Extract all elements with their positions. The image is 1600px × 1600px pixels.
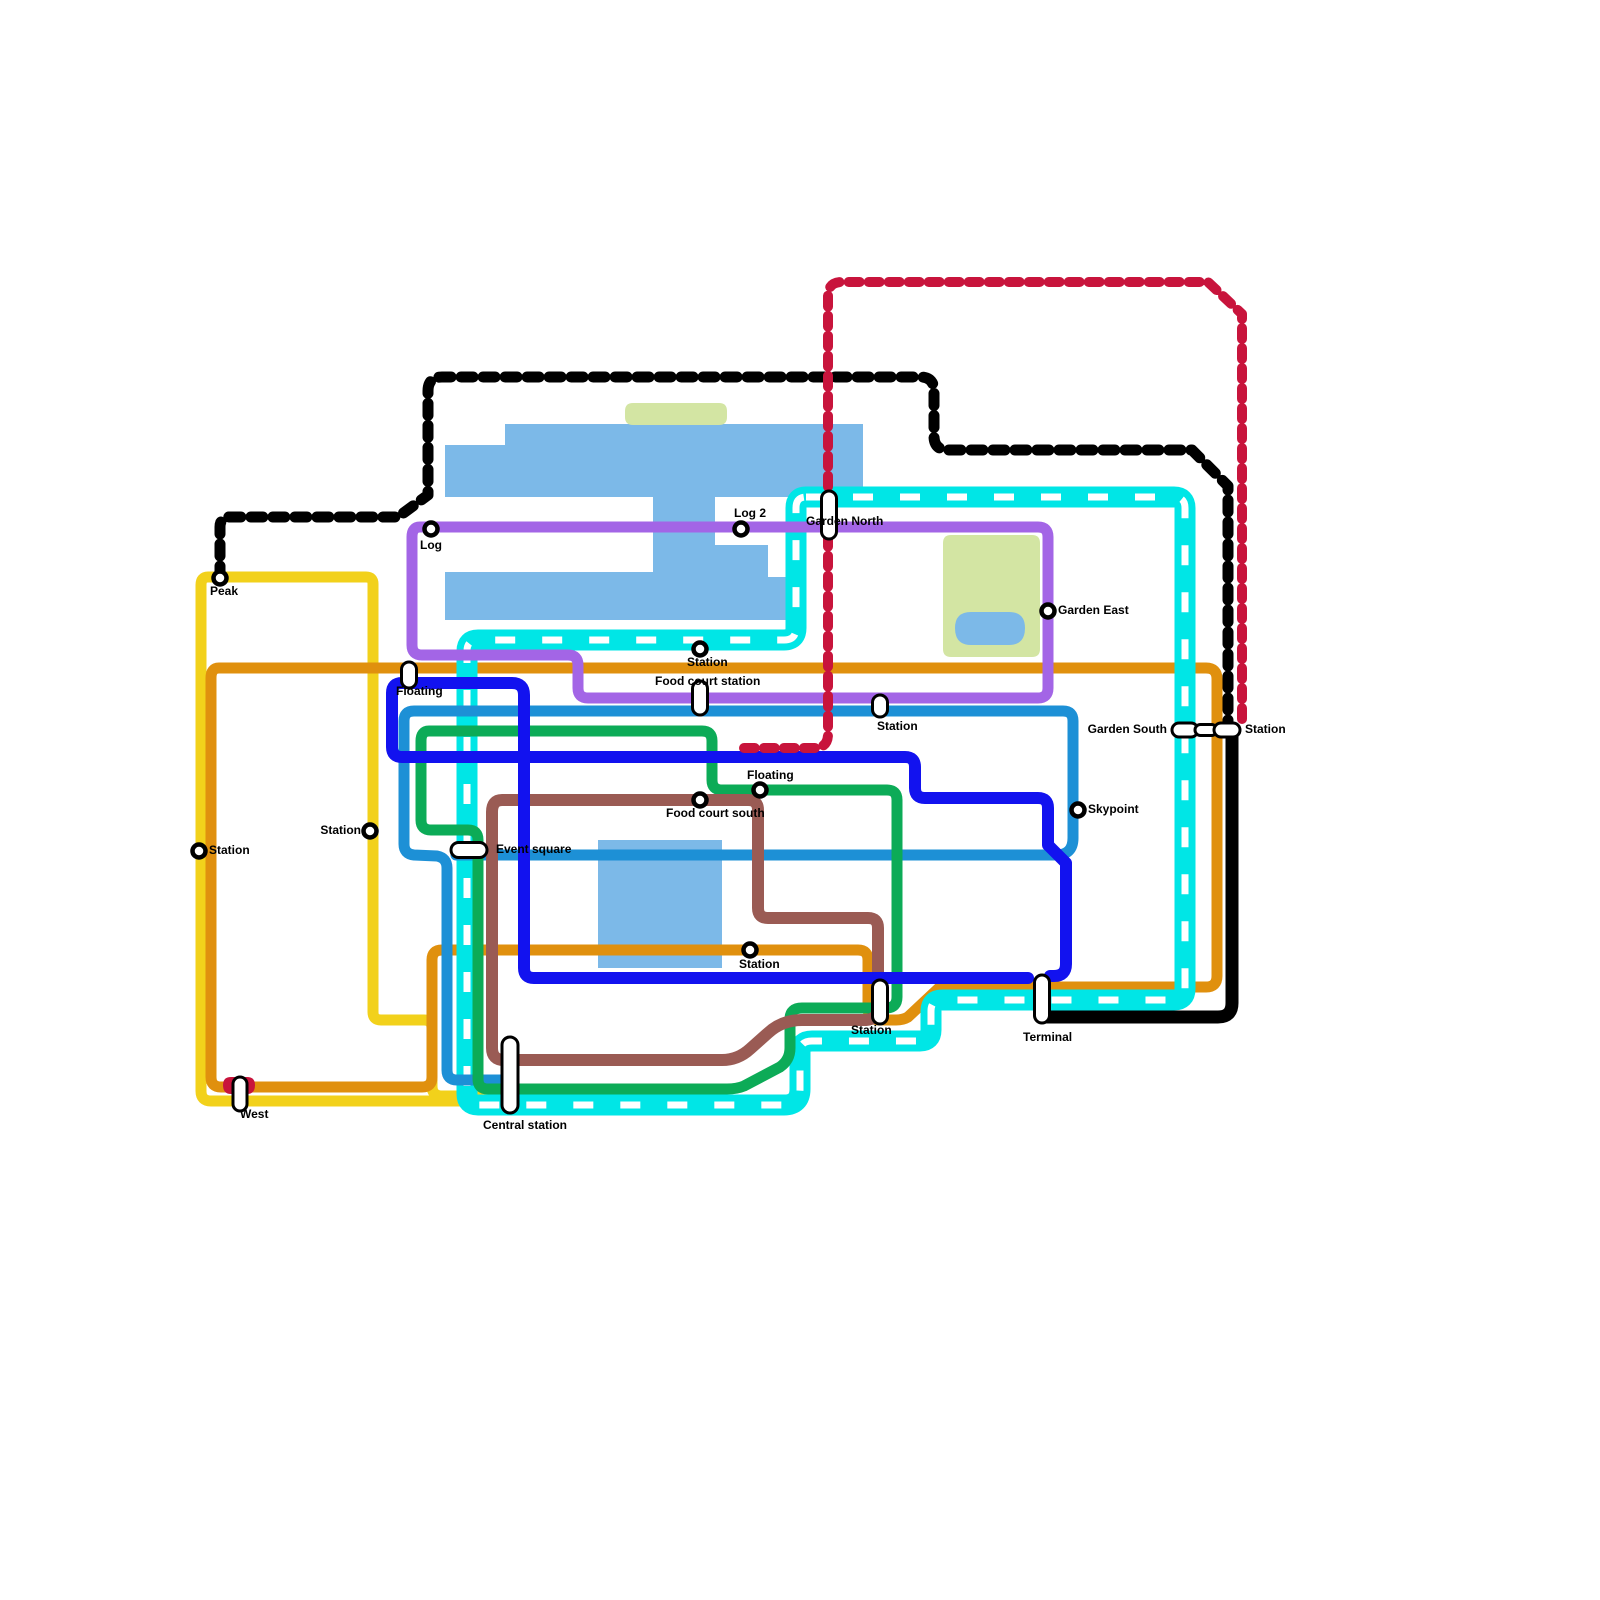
station-marker-station-purple-azure[interactable] (873, 695, 888, 717)
station-marker-event-square[interactable] (451, 843, 487, 858)
station-marker-station-orange-mid[interactable] (744, 944, 757, 957)
map-background (0, 0, 1600, 1600)
station-marker-floating-green[interactable] (754, 784, 767, 797)
station-label-floating-green: Floating (747, 768, 794, 782)
station-marker-station-cyan-north[interactable] (694, 643, 707, 656)
station-marker-food-court-south[interactable] (694, 794, 707, 807)
station-marker-log[interactable] (425, 523, 438, 536)
station-marker-skypoint[interactable] (1072, 804, 1085, 817)
station-label-station-cyan-north: Station (687, 655, 728, 669)
station-label-peak: Peak (210, 584, 238, 598)
station-label-floating-west: Floating (396, 684, 443, 698)
station-label-terminal: Terminal (1023, 1030, 1072, 1044)
station-marker-peak[interactable] (214, 572, 227, 585)
pond-east-area (955, 612, 1025, 645)
station-label-station-yellow-west: Station (209, 843, 250, 857)
station-marker-central-station[interactable] (502, 1037, 518, 1113)
station-label-station-purple-azure: Station (877, 719, 918, 733)
station-label-skypoint: Skypoint (1088, 802, 1139, 816)
station-marker-station-bottom[interactable] (873, 980, 888, 1024)
station-label-log-2: Log 2 (734, 506, 766, 520)
station-label-garden-south: Garden South (1088, 722, 1167, 736)
map-canvas: PeakLogLog 2Garden NorthGarden EastStati… (0, 0, 1600, 1600)
station-marker-log-2[interactable] (735, 523, 748, 536)
station-marker-terminal[interactable] (1035, 975, 1050, 1023)
station-label-station-bottom: Station (851, 1023, 892, 1037)
station-marker-station-yellow-west[interactable] (193, 845, 206, 858)
station-marker-west[interactable] (233, 1077, 247, 1111)
station-marker-garden-east[interactable] (1042, 605, 1055, 618)
station-marker-station-red-terminus[interactable] (1214, 723, 1240, 737)
station-label-west: West (240, 1107, 268, 1121)
station-label-log: Log (420, 538, 442, 552)
station-marker-station-yellow-mid[interactable] (364, 825, 377, 838)
station-label-food-court-south: Food court south (666, 806, 765, 820)
transit-map: PeakLogLog 2Garden NorthGarden EastStati… (0, 0, 1600, 1600)
station-label-central-station: Central station (483, 1118, 567, 1132)
station-label-garden-north: Garden North (806, 514, 883, 528)
park-north-area (625, 403, 727, 425)
station-label-station-orange-mid: Station (739, 957, 780, 971)
station-label-station-yellow-mid: Station (320, 823, 361, 837)
station-label-station-red-terminus: Station (1245, 722, 1286, 736)
station-label-garden-east: Garden East (1058, 603, 1129, 617)
station-label-food-court-station: Food court station (655, 674, 760, 688)
station-label-event-square: Event square (496, 842, 572, 856)
